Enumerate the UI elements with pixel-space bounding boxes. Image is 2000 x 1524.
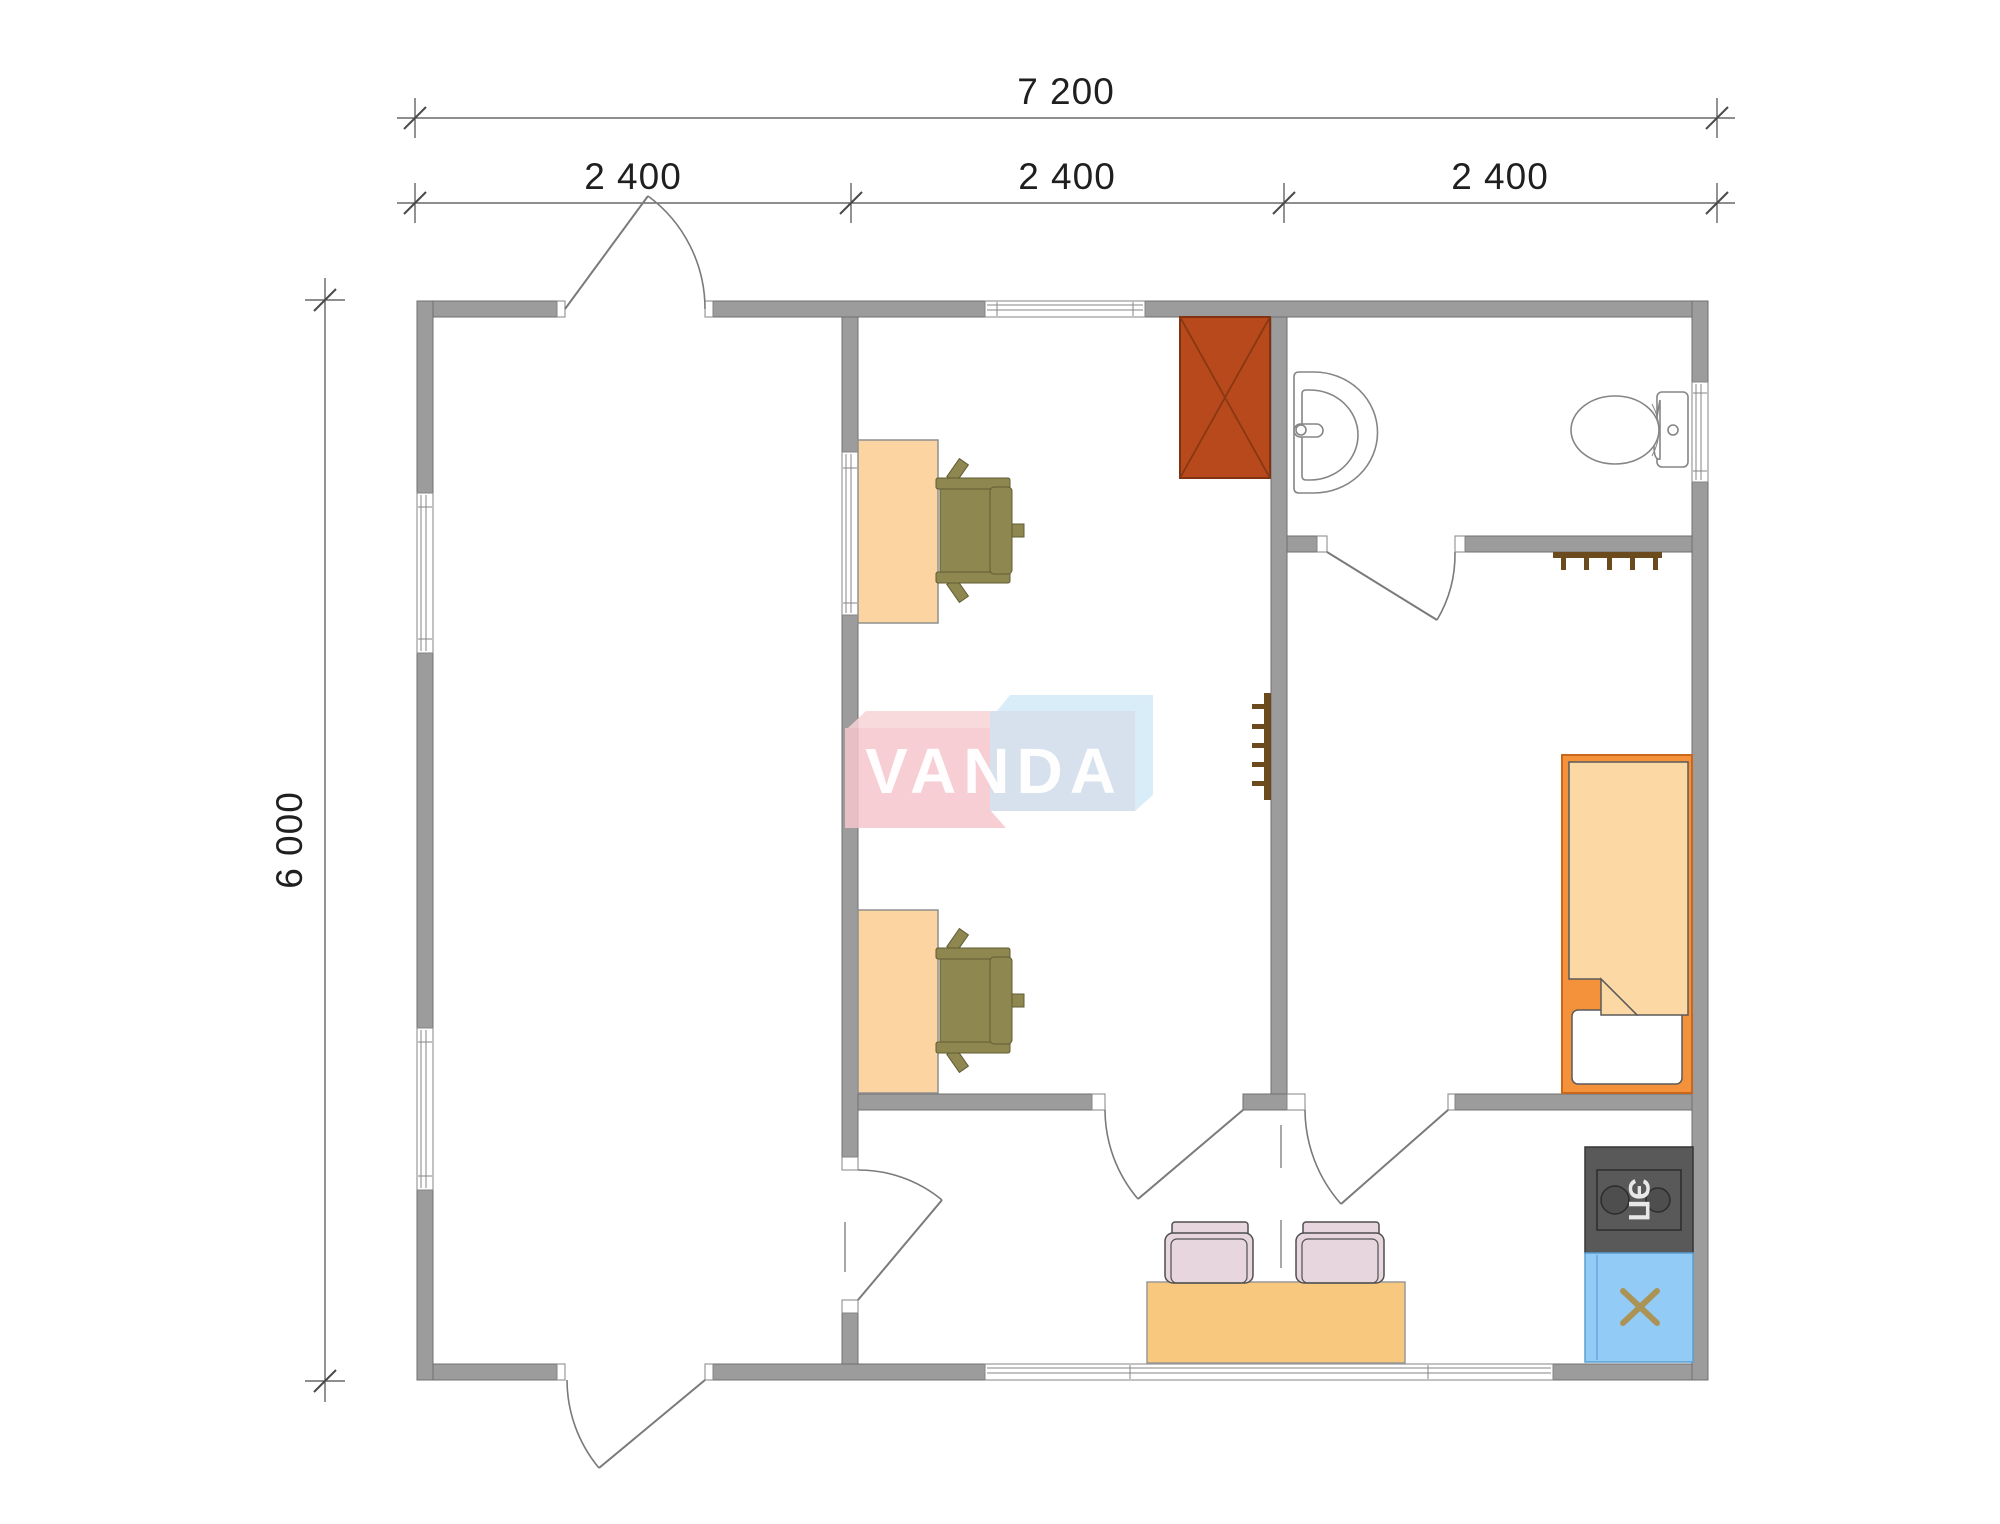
pillow: [1572, 1010, 1682, 1084]
floor-plan-page: 7 200 2 400 2 400 2 400 6 000: [0, 0, 2000, 1524]
door-leftroom-hall: [858, 1170, 942, 1300]
blanket: [1569, 762, 1688, 1015]
dim-label-module-2: 2 400: [1018, 156, 1116, 197]
bed: [1562, 755, 1692, 1093]
floor-plan: 7 200 2 400 2 400 2 400 6 000: [0, 0, 2000, 1524]
door-bedroom-hall: [1305, 1110, 1448, 1204]
exterior-walls: [417, 301, 1708, 1380]
coat-rack-middle-room: [1252, 693, 1271, 800]
dimension-top-modules: 2 400 2 400 2 400: [397, 156, 1735, 223]
window-bottom: [985, 1364, 1553, 1380]
toilet: [1571, 392, 1688, 467]
dining-chair-1: [1165, 1222, 1253, 1283]
dining-table: [1147, 1282, 1405, 1363]
dim-label-total-width: 7 200: [1017, 71, 1115, 112]
window-left-1: [417, 493, 433, 653]
kitchen-sink-unit: [1585, 1253, 1693, 1362]
wardrobe: [1180, 317, 1270, 478]
door-entry-top-left: [565, 196, 705, 309]
window-left-2: [417, 1028, 433, 1190]
door-bathroom: [1327, 552, 1455, 620]
bathroom-sink: [1294, 372, 1378, 493]
dining-chair-2: [1296, 1222, 1384, 1283]
dimension-left-total: 6 000: [269, 278, 345, 1402]
desk-1: [858, 440, 938, 623]
dim-label-module-1: 2 400: [584, 156, 682, 197]
window-top: [985, 301, 1145, 317]
stove-counter: ЭП: [1585, 1147, 1693, 1253]
desk-2: [858, 910, 938, 1093]
dim-label-total-height: 6 000: [269, 791, 310, 889]
vanda-logo-text: VANDA: [865, 735, 1123, 807]
stove-label: ЭП: [1622, 1179, 1655, 1222]
office-chair-1: [936, 459, 1024, 603]
windows: [417, 301, 1708, 1380]
coat-rack-bedroom: [1553, 552, 1662, 570]
dimension-top-total: 7 200: [397, 71, 1735, 138]
window-right-bathroom: [1692, 382, 1708, 482]
office-chair-2: [936, 929, 1024, 1073]
door-middleroom-hall: [1105, 1110, 1243, 1199]
window-partition-interior: [842, 452, 858, 615]
door-exit-bottom-left: [567, 1380, 705, 1468]
vanda-logo: VANDA: [845, 695, 1153, 828]
dim-label-module-3: 2 400: [1451, 156, 1549, 197]
